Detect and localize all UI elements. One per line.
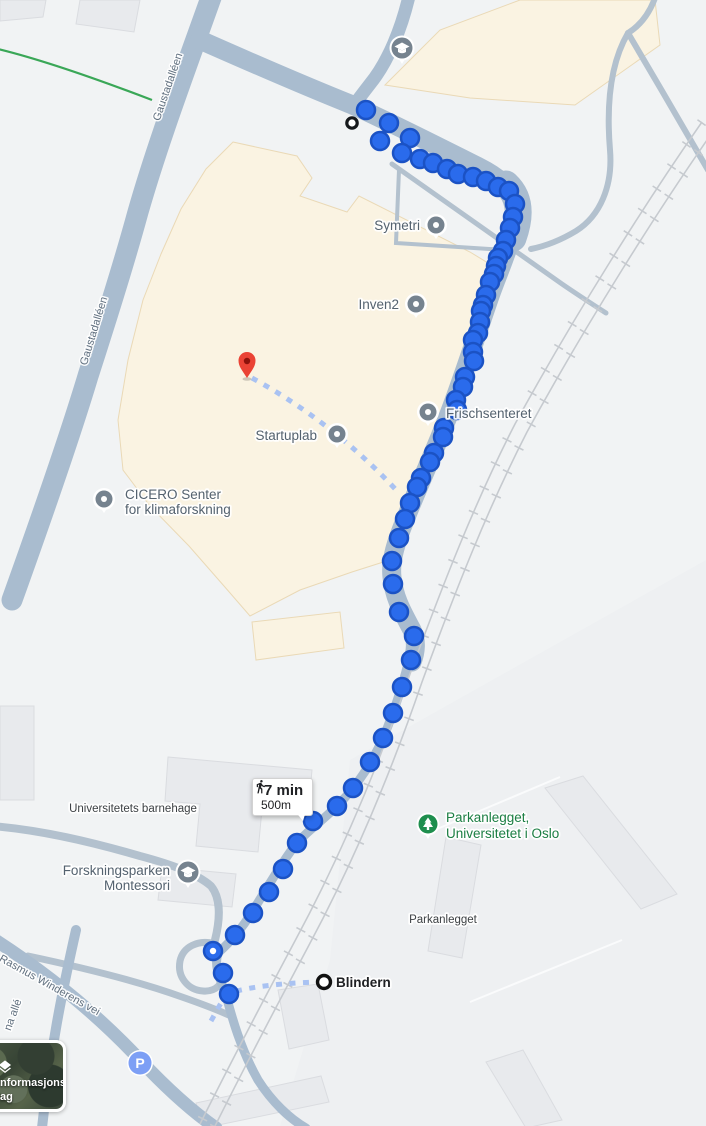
- label-frischsenteret[interactable]: Frischsenteret: [446, 406, 532, 421]
- route-dot[interactable]: [390, 603, 408, 621]
- label-parkanlegget-uio-line2[interactable]: Universitetet i Oslo: [446, 826, 559, 841]
- route-dot[interactable]: [374, 729, 392, 747]
- route-dot[interactable]: [344, 779, 362, 797]
- route-duration-tooltip[interactable]: 7 min 500m: [252, 778, 313, 816]
- route-dot[interactable]: [274, 860, 292, 878]
- route-dot[interactable]: [384, 575, 402, 593]
- route-dot[interactable]: [288, 834, 306, 852]
- route-dot[interactable]: [393, 678, 411, 696]
- label-barnehage: Universitetets barnehage: [69, 803, 197, 815]
- route-start-marker[interactable]: [347, 118, 357, 128]
- label-montessori-line2[interactable]: Montessori: [104, 878, 170, 893]
- blindern-station-marker[interactable]: [318, 976, 331, 989]
- layers-label-line1: nformasjons-: [0, 1076, 66, 1090]
- route-distance: 500m: [261, 799, 303, 811]
- route-dot[interactable]: [390, 529, 408, 547]
- route-dot[interactable]: [357, 101, 375, 119]
- route-dot[interactable]: [396, 510, 414, 528]
- parking-letter: P: [135, 1055, 144, 1071]
- route-dot[interactable]: [244, 904, 262, 922]
- map-canvas[interactable]: P Symetri Inven2 Startuplab CICERO Sente…: [0, 0, 706, 1126]
- parking-icon[interactable]: P: [127, 1050, 153, 1076]
- label-cicero-line2[interactable]: for klimaforskning: [125, 502, 231, 517]
- route-dot[interactable]: [371, 132, 389, 150]
- route-dot[interactable]: [260, 883, 278, 901]
- layers-button[interactable]: nformasjons- ag: [0, 1040, 66, 1112]
- route-dot[interactable]: [380, 114, 398, 132]
- route-duration: 7 min: [264, 782, 303, 799]
- route-dot[interactable]: [220, 985, 238, 1003]
- route-dot[interactable]: [405, 627, 423, 645]
- label-cicero-line1[interactable]: CICERO Senter: [125, 487, 222, 502]
- route-waypoint-dot[interactable]: [210, 948, 216, 954]
- route-dot[interactable]: [393, 144, 411, 162]
- route-dot[interactable]: [361, 753, 379, 771]
- label-inven2[interactable]: Inven2: [358, 297, 399, 312]
- label-parkanlegget: Parkanlegget: [409, 914, 478, 926]
- route-dot[interactable]: [402, 651, 420, 669]
- route-dot[interactable]: [384, 704, 402, 722]
- label-startuplab[interactable]: Startuplab: [255, 428, 317, 443]
- label-parkanlegget-uio-line1[interactable]: Parkanlegget,: [446, 810, 529, 825]
- route-dot[interactable]: [214, 964, 232, 982]
- label-symetri[interactable]: Symetri: [374, 218, 420, 233]
- route-dot[interactable]: [383, 552, 401, 570]
- label-blindern[interactable]: Blindern: [336, 975, 391, 990]
- layers-label-line2: ag: [0, 1090, 66, 1104]
- label-montessori-line1[interactable]: Forskningsparken: [63, 863, 170, 878]
- route-dot[interactable]: [226, 926, 244, 944]
- route-dot[interactable]: [328, 797, 346, 815]
